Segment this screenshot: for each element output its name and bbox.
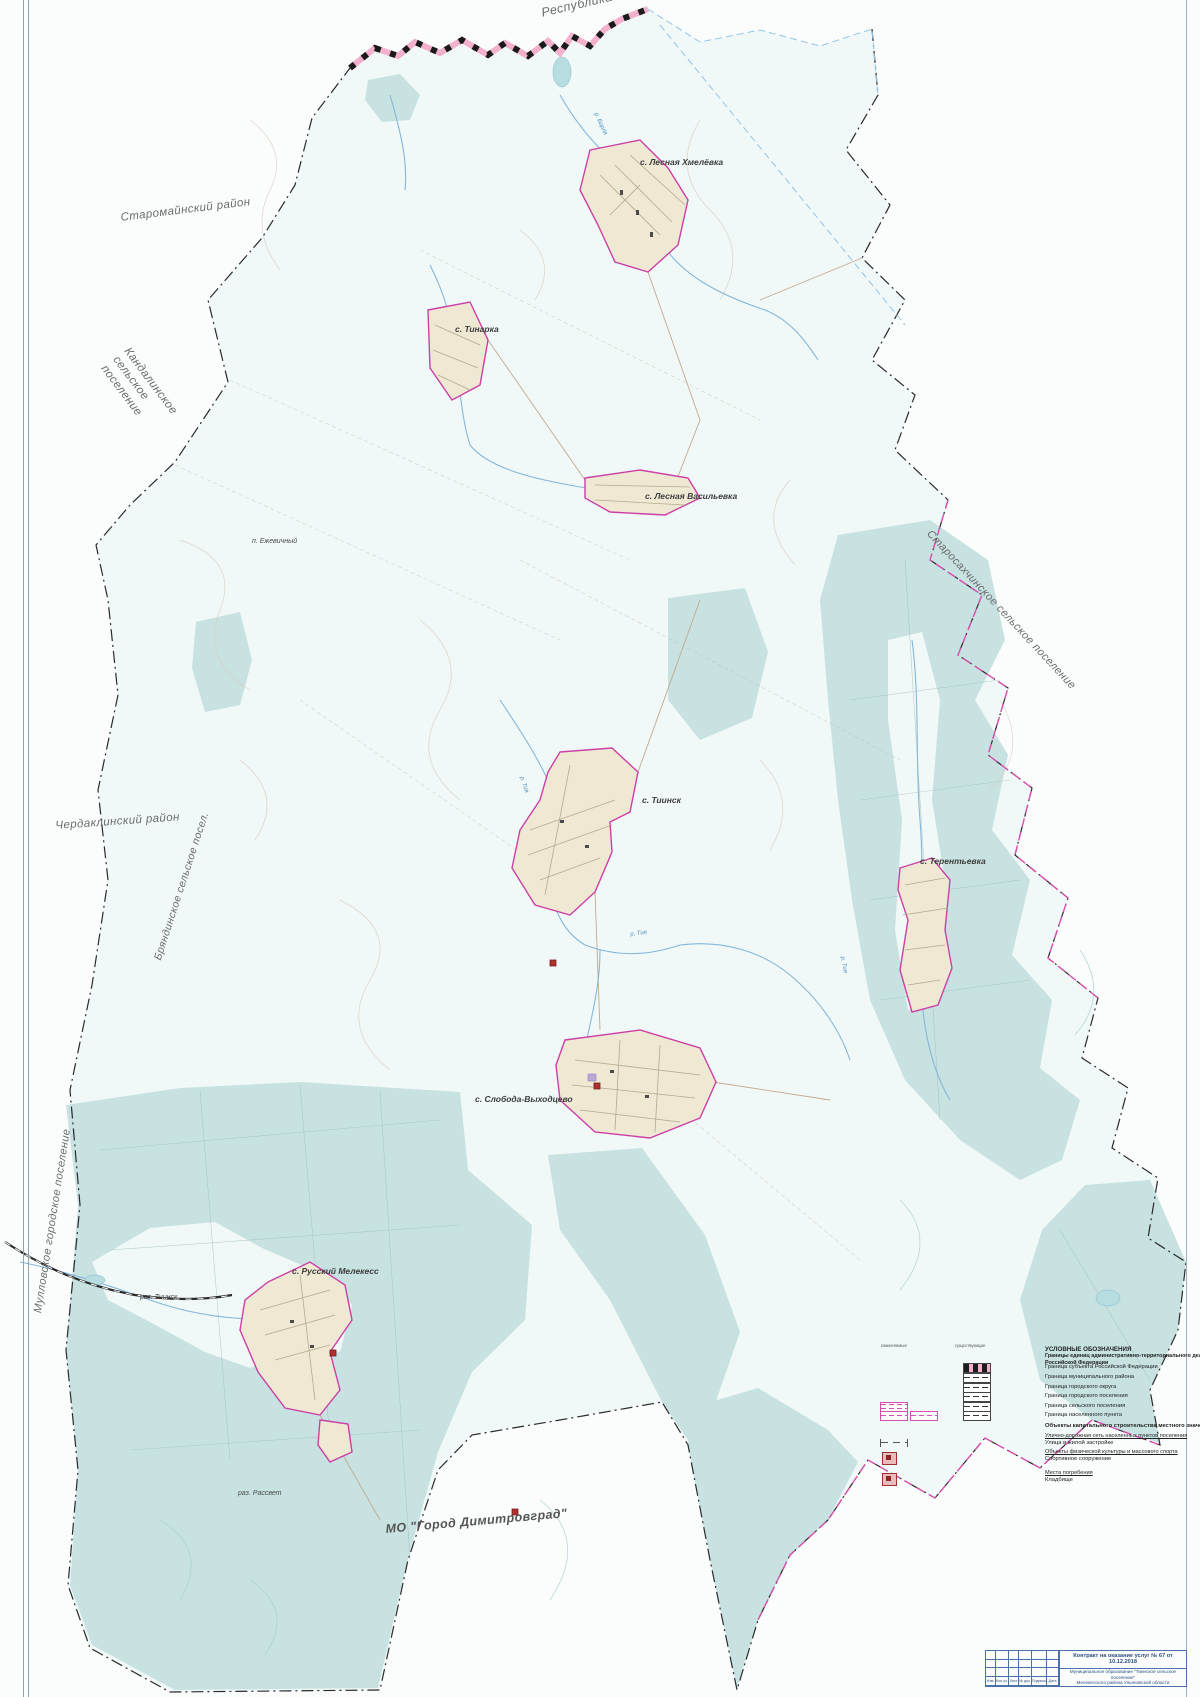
legend-subheader-sport: Объекты физической культуры и массового …: [1045, 1449, 1200, 1455]
legend-item-rural-settlement-boundary: Граница сельского поселения: [1045, 1403, 1125, 1409]
stamp-col-podpis: Подпись: [1032, 1677, 1047, 1686]
label-sloboda-vykhodtsevo: с. Слобода-Выходцево: [475, 1094, 573, 1104]
sheet-left-rule: [23, 0, 29, 1697]
legend-item-city-settlement-boundary: Граница городского поселения: [1045, 1393, 1128, 1399]
legend-item-sport: Спортивное сооружение: [1045, 1456, 1111, 1462]
label-lesnaya-vasilyevka: с. Лесная Васильевка: [645, 491, 737, 501]
label-tiinsk: с. Тиинск: [642, 795, 681, 805]
street-symbol-icon: [880, 1439, 908, 1447]
sport-facility-icon: [882, 1452, 897, 1465]
label-lesnaya-khmelyovka: с. Лесная Хмелёвка: [640, 157, 723, 167]
stamp-grid: Изм. Кол.уч. Лист № док. Подпись Дата: [986, 1651, 1059, 1686]
label-terentyevka: с. Терентьевка: [920, 856, 986, 866]
label-raz-tiinsk: раз. Тиинск: [140, 1294, 177, 1301]
legend-section-capital-objects: Объекты капитального строительства местн…: [1045, 1423, 1200, 1429]
legend-title: УСЛОВНЫЕ ОБОЗНАЧЕНИЯ: [1045, 1346, 1131, 1353]
legend-swatch-district-boundary: [963, 1373, 991, 1383]
legend-item-cemetery: Кладбище: [1045, 1477, 1073, 1483]
municipality-line1: Муниципальное образование "Тиинское сель…: [1062, 1669, 1184, 1680]
cemetery-icon: [882, 1473, 897, 1486]
legend-swatch-subject-boundary: [963, 1363, 991, 1373]
legend-item-subject-boundary: Граница субъекта Российской Федерации: [1045, 1364, 1158, 1370]
stamp-col-koluch: Кол.уч.: [996, 1677, 1009, 1686]
label-tinarka: с. Тинарка: [455, 324, 499, 334]
stamp-right-box: Контракт на оказание услуг № 67 от 10.12…: [1059, 1651, 1186, 1686]
legend-swatch-city-settlement-boundary: [963, 1392, 991, 1402]
title-block: Изм. Кол.уч. Лист № док. Подпись Дата Ко…: [985, 1650, 1187, 1687]
legend-column-changed: изменяемые: [874, 1343, 914, 1348]
stamp-col-list: Лист: [1009, 1677, 1019, 1686]
stamp-col-data: Дата: [1047, 1677, 1059, 1686]
legend-subheader-burial: Места погребения: [1045, 1470, 1200, 1476]
legend-item-city-okrug-boundary: Граница городского округа: [1045, 1384, 1116, 1390]
legend-column-existing: существующие: [950, 1343, 990, 1348]
label-ezhevichny: п. Ежевичный: [252, 538, 297, 545]
legend-swatch-locality-boundary: [963, 1411, 991, 1421]
public-building-marker: [588, 1074, 596, 1081]
legend-item-locality-boundary: Граница населенного пункта: [1045, 1412, 1122, 1418]
municipality-name: Муниципальное образование "Тиинское сель…: [1060, 1669, 1186, 1686]
label-russky-melekess: с. Русский Мелекесс: [292, 1266, 379, 1276]
legend-swatch-locality-changed: [880, 1411, 908, 1421]
stamp-col-dok: № док.: [1019, 1677, 1032, 1686]
label-raz-rassvet: раз. Рассвет: [238, 1490, 281, 1497]
map-sheet: Республика Татарстан Старомайнский район…: [0, 0, 1200, 1697]
legend-item-district-boundary: Граница муниципального района: [1045, 1374, 1134, 1380]
sheet-right-rule: [1186, 0, 1187, 1697]
legend-subheader-roads: Улично-дорожная сеть населенных пунктов …: [1045, 1433, 1200, 1439]
contract-number: Контракт на оказание услуг № 67 от 10.12…: [1060, 1651, 1186, 1669]
legend-item-street: Улица в жилой застройке: [1045, 1440, 1113, 1446]
legend-swatch-locality-changed-2: [910, 1411, 938, 1421]
map-legend: УСЛОВНЫЕ ОБОЗНАЧЕНИЯ Границы единиц адми…: [878, 1340, 1180, 1492]
stamp-col-izm: Изм.: [986, 1677, 996, 1686]
municipality-line2: Мелекесского района Ульяновской области: [1077, 1680, 1170, 1686]
